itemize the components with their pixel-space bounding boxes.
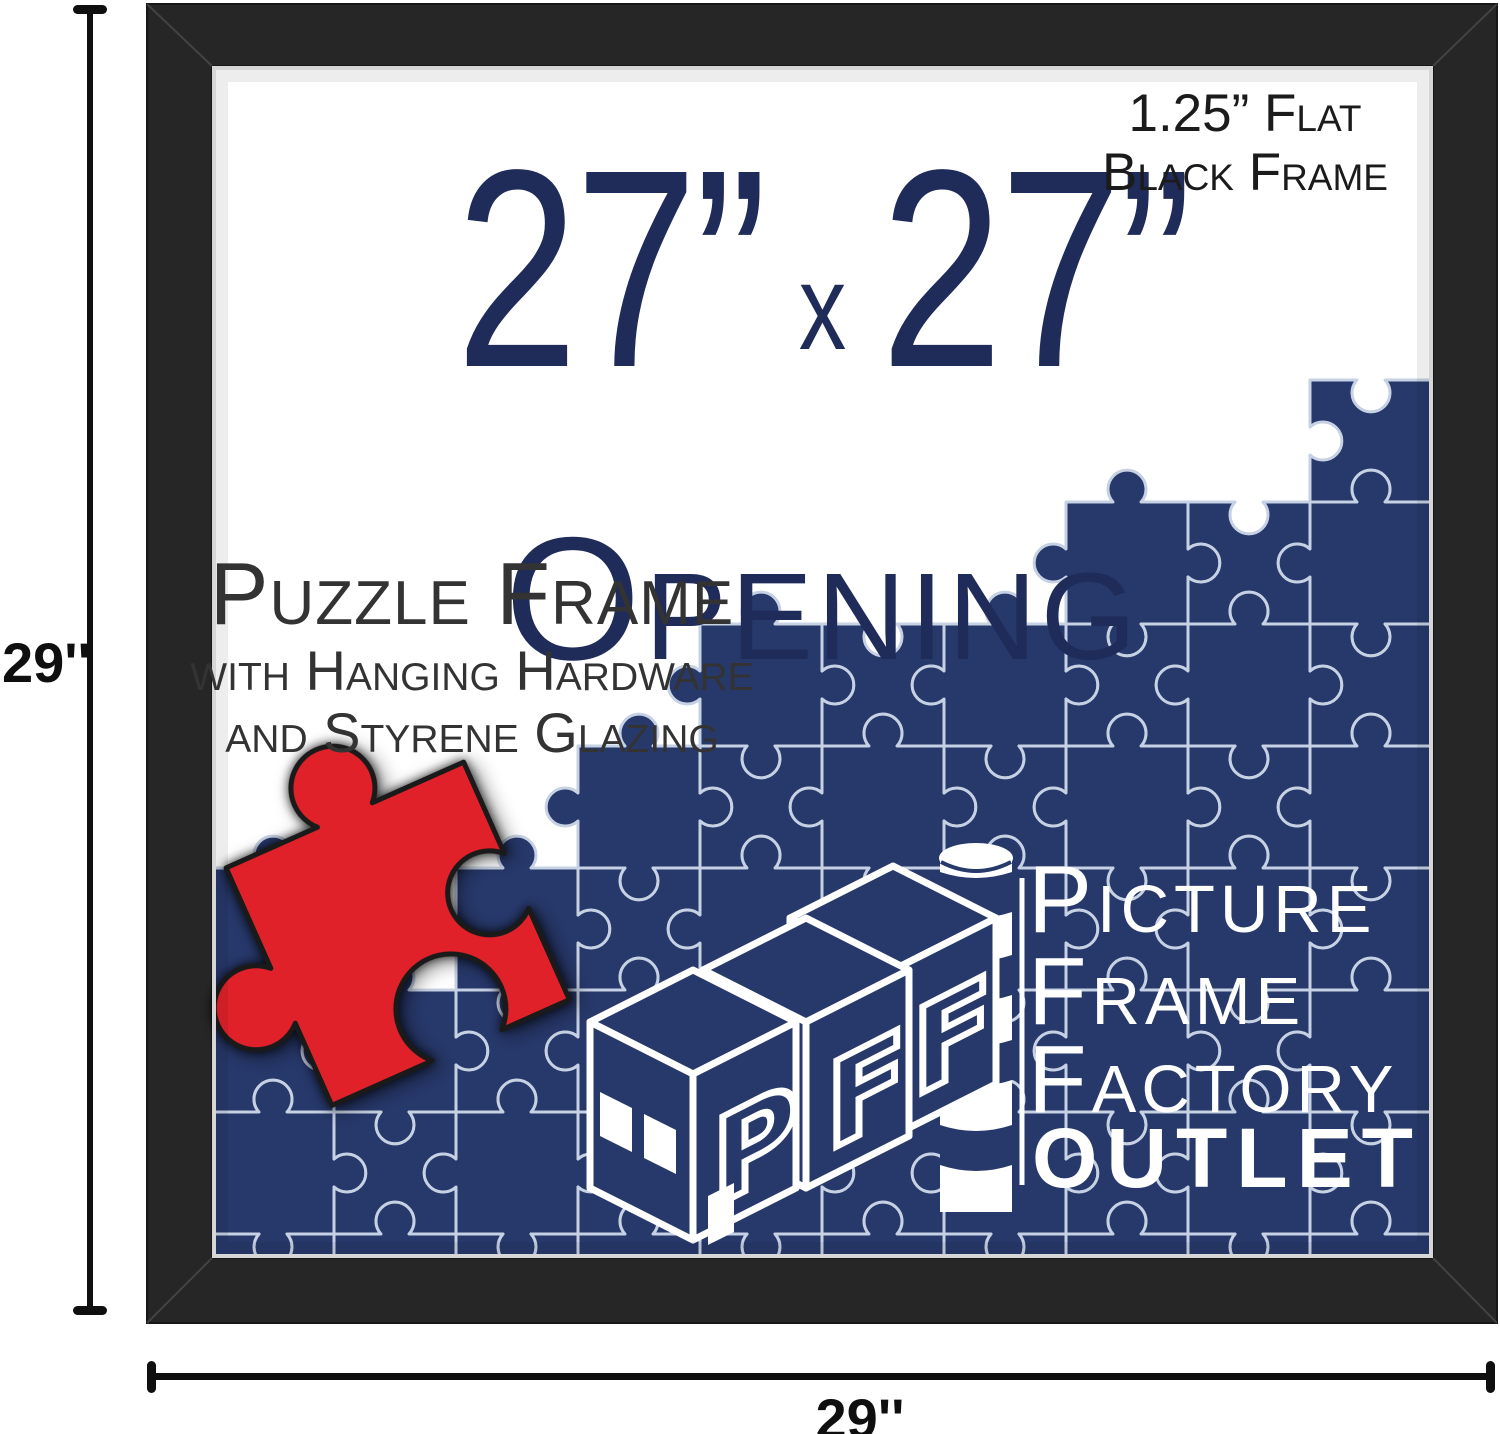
frame-spec-line1: 1.25” Flat (1060, 84, 1430, 143)
product-title: Puzzle Frame (172, 548, 772, 640)
opening-width-value: 27” (456, 128, 765, 410)
logo-word-picture: Picture (1028, 852, 1376, 948)
product-feature-2: and Styrene Glazing (172, 702, 772, 764)
frame-spec-note: 1.25” Flat Black Frame (1060, 84, 1430, 203)
frame-spec-line2: Black Frame (1060, 143, 1430, 202)
logo-word-outlet: OUTLET (1032, 1116, 1422, 1200)
product-feature-1: with Hanging Hardware (172, 640, 772, 702)
product-dimension-diagram: 29'' 29'' (0, 0, 1500, 1434)
product-description: Puzzle Frame with Hanging Hardware and S… (172, 548, 772, 764)
opening-size-separator: x (799, 246, 847, 368)
